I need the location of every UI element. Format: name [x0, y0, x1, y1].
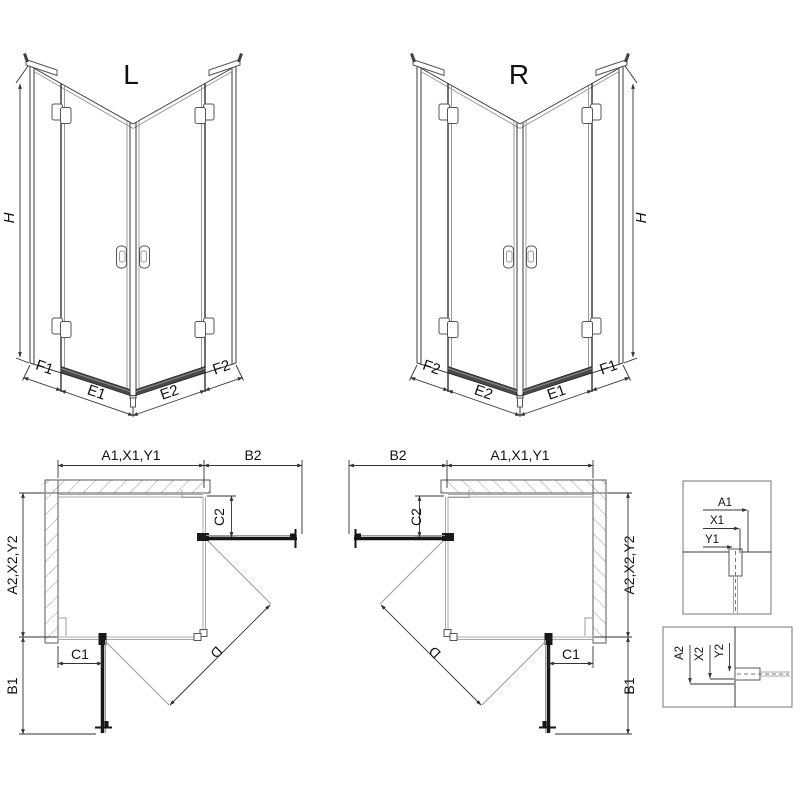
- dim-label-f2-right: F2: [420, 357, 442, 379]
- plan-right-label-c1: C1: [562, 646, 580, 662]
- plan-right-label-a2: A2,X2,Y2: [621, 535, 637, 594]
- detail-box-wall-profile: A1 X1 Y1: [683, 481, 771, 614]
- plan-right-label-c2: C2: [408, 508, 424, 526]
- detail1-label-a1: A1: [718, 497, 732, 509]
- detail2-label-a2: A2: [674, 646, 686, 660]
- detail1-label-x1: X1: [710, 515, 724, 527]
- plan-left-label-d: D: [207, 643, 225, 661]
- plan-right-label-d: D: [425, 643, 443, 661]
- dim-label-height-right: H: [633, 212, 650, 223]
- view-iso-left: L H F1 E1 E2 F2: [1, 54, 244, 418]
- plan-left-label-a1: A1,X1,Y1: [101, 447, 160, 463]
- plan-left-label-a2: A2,X2,Y2: [4, 535, 20, 594]
- plan-right-label-b1: B1: [621, 677, 637, 694]
- technical-drawing-page: L H F1 E1 E2 F2 R H F2 E2 E1 F1 A1,X1,Y1…: [0, 0, 800, 800]
- detail1-label-y1: Y1: [705, 534, 719, 546]
- plan-right-label-a1: A1,X1,Y1: [490, 447, 549, 463]
- view-title-right: R: [509, 59, 529, 90]
- plan-view-left: A1,X1,Y1 B2 C2 A2,X2,Y2 C1 B1 D: [4, 447, 302, 734]
- plan-left-label-c2: C2: [211, 508, 227, 526]
- detail-box-side-profile: A2 X2 Y2: [663, 627, 792, 707]
- plan-view-right: B2 A1,X1,Y1 C2 A2,X2,Y2 C1 B1 D: [349, 447, 637, 734]
- detail2-label-y2: Y2: [714, 644, 726, 658]
- detail2-label-x2: X2: [694, 647, 706, 661]
- dim-label-f1-right: F1: [597, 357, 619, 379]
- plan-left-label-c1: C1: [71, 646, 89, 662]
- view-iso-right: R H F2 E2 E1 F1: [410, 54, 651, 418]
- shower-enclosure-drawing: L H F1 E1 E2 F2 R H F2 E2 E1 F1 A1,X1,Y1…: [0, 0, 800, 800]
- plan-left-label-b2: B2: [244, 447, 261, 463]
- plan-right-label-b2: B2: [389, 447, 406, 463]
- dim-label-f2-left: F2: [210, 357, 232, 379]
- view-title-left: L: [123, 59, 139, 90]
- dim-label-height-left: H: [1, 212, 18, 223]
- plan-left-label-b1: B1: [4, 677, 20, 694]
- dim-label-f1-left: F1: [33, 357, 55, 379]
